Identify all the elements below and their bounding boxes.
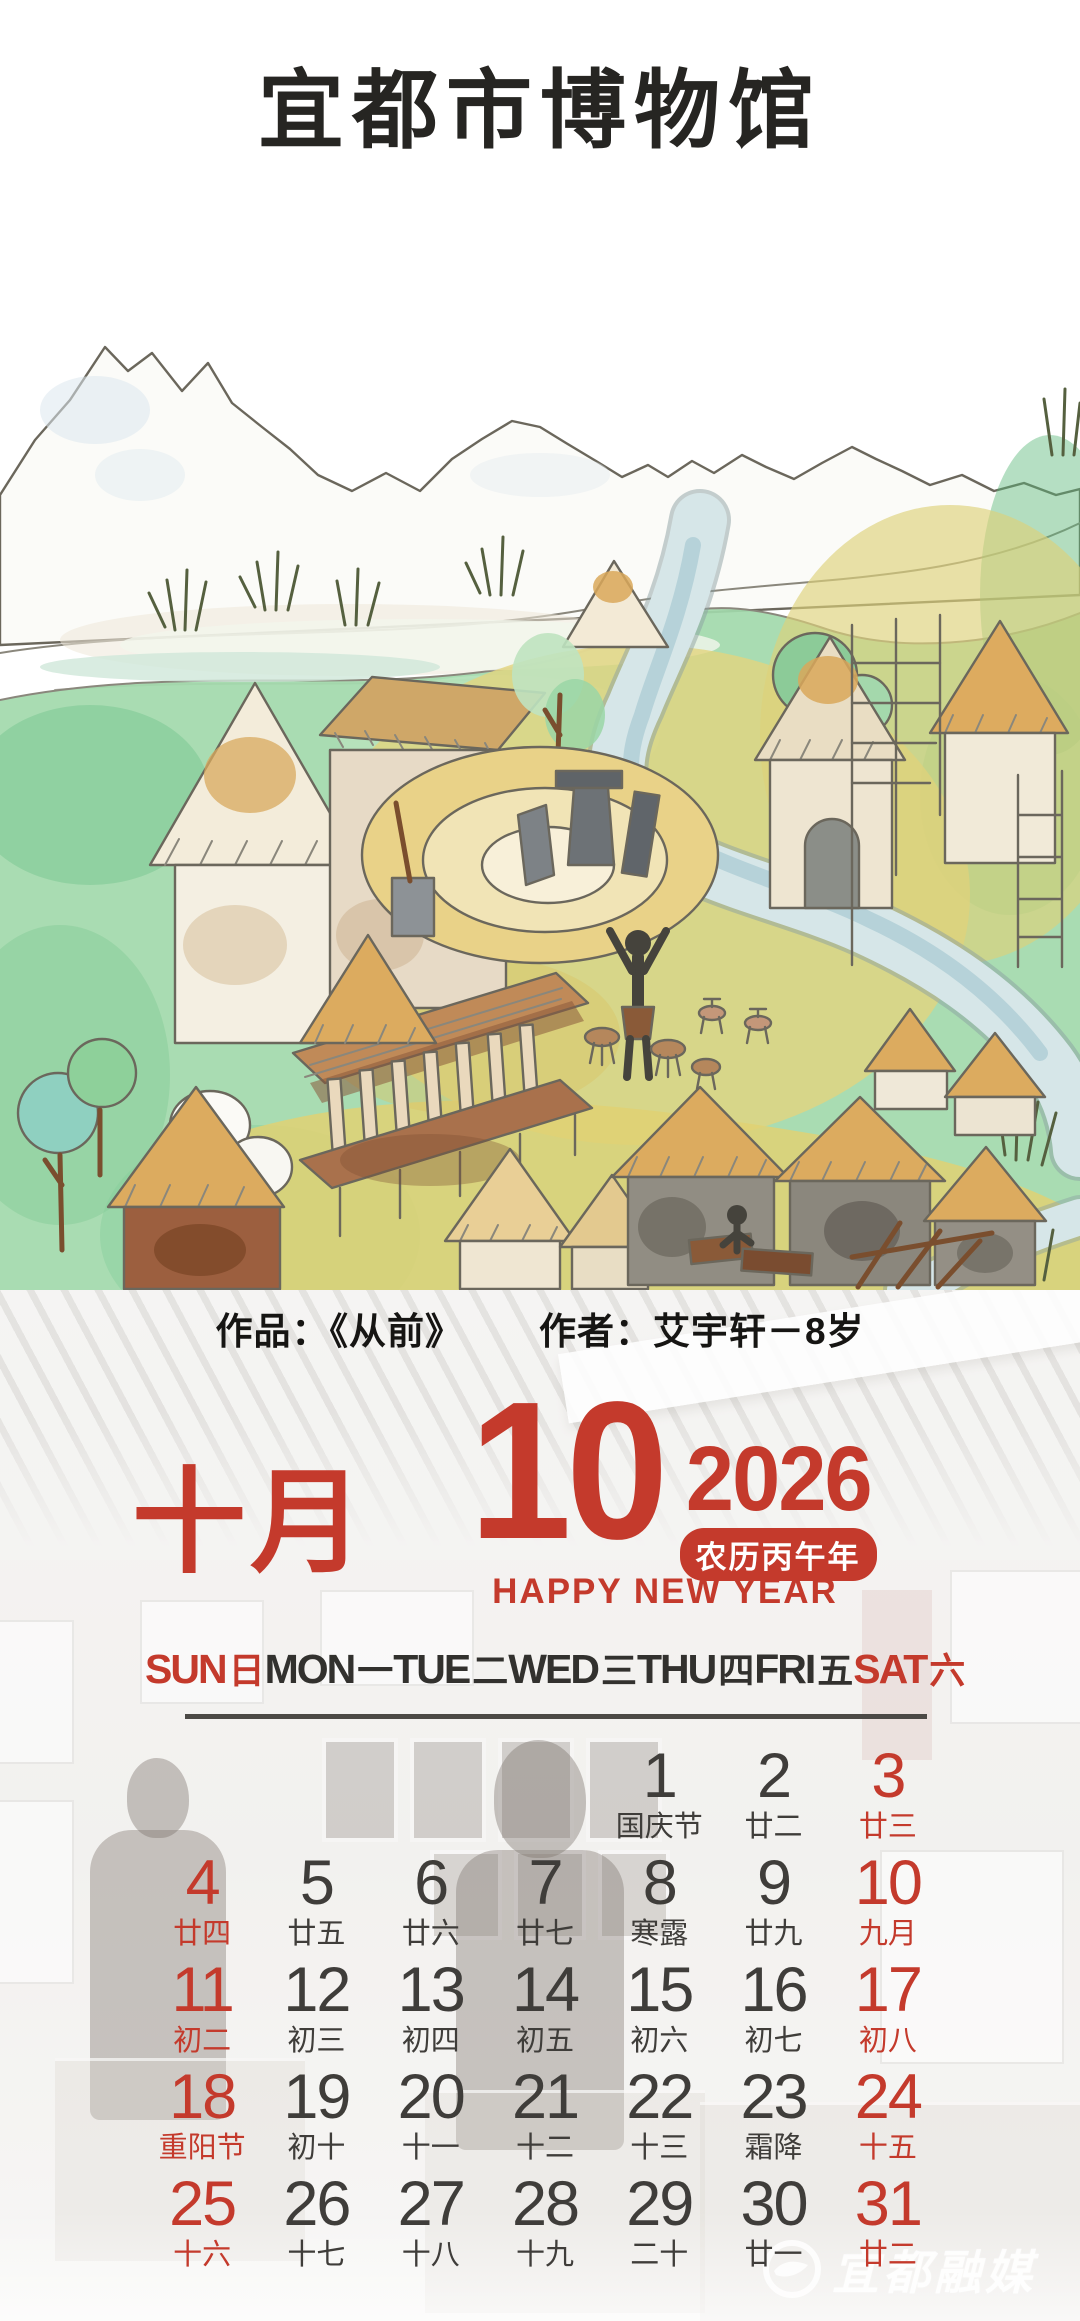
day-1: 1国庆节: [602, 1744, 716, 1851]
wall-frame: [950, 1570, 1080, 1724]
month-year-block: 10 2026 农历丙午年: [440, 1378, 900, 1581]
day-6: 6廿六: [374, 1851, 488, 1958]
day-25: 25十六: [145, 2172, 259, 2279]
day-27: 27十八: [374, 2172, 488, 2279]
artwork-painting: [0, 175, 1080, 1290]
day-empty: [374, 1744, 488, 1851]
day-8: 8寒露: [602, 1851, 716, 1958]
day-23: 23霜降: [716, 2065, 830, 2172]
weekday-wed: WED三: [508, 1642, 637, 1694]
wall-frame: [0, 1800, 74, 1984]
page-title: 宜都市博物馆: [0, 40, 1080, 165]
day-5: 5廿五: [259, 1851, 373, 1958]
day-17: 17初八: [831, 1958, 945, 2065]
day-31: 31廿二: [831, 2172, 945, 2279]
day-2: 2廿二: [716, 1744, 830, 1851]
year-number: 2026: [686, 1438, 871, 1520]
day-24: 24十五: [831, 2065, 945, 2172]
day-26: 26十七: [259, 2172, 373, 2279]
day-empty: [488, 1744, 602, 1851]
weekday-divider: [185, 1714, 927, 1719]
day-18: 18重阳节: [145, 2065, 259, 2172]
weekday-mon: MON一: [265, 1642, 394, 1694]
greeting-text: HAPPY NEW YEAR: [425, 1572, 905, 1612]
month-number: 10: [470, 1378, 664, 1564]
day-empty: [145, 1744, 259, 1851]
day-21: 21十二: [488, 2065, 602, 2172]
weekday-sat: SAT六: [853, 1642, 965, 1694]
day-13: 13初四: [374, 1958, 488, 2065]
day-3: 3廿三: [831, 1744, 945, 1851]
day-9: 9廿九: [716, 1851, 830, 1958]
weekday-row: SUN日MON一TUE二WED三THU四FRI五SAT六: [145, 1642, 945, 1694]
weekday-tue: TUE二: [393, 1642, 508, 1694]
day-30: 30廿一: [716, 2172, 830, 2279]
artwork-caption: 作品：《从前》 作者：艾宇轩－8岁: [0, 1301, 1080, 1355]
day-19: 19初十: [259, 2065, 373, 2172]
date-grid: 1国庆节2廿二3廿三4廿四5廿五6廿六7廿七8寒露9廿九10九月11初二12初三…: [145, 1744, 945, 2279]
day-empty: [259, 1744, 373, 1851]
day-15: 15初六: [602, 1958, 716, 2065]
artwork-author-label: 作者：艾宇轩－8岁: [539, 1301, 865, 1355]
calendar-poster: 宜都市博物馆: [0, 0, 1080, 2321]
weekday-sun: SUN日: [145, 1642, 265, 1694]
day-16: 16初七: [716, 1958, 830, 2065]
weekday-fri: FRI五: [754, 1642, 853, 1694]
day-7: 7廿七: [488, 1851, 602, 1958]
weekday-thu: THU四: [637, 1642, 754, 1694]
day-29: 29二十: [602, 2172, 716, 2279]
day-11: 11初二: [145, 1958, 259, 2065]
wall-frame: [0, 1620, 74, 1764]
day-4: 4廿四: [145, 1851, 259, 1958]
month-name-chinese: 十月: [132, 1430, 368, 1595]
artwork-title-label: 作品：《从前》: [215, 1301, 463, 1355]
day-22: 22十三: [602, 2065, 716, 2172]
day-14: 14初五: [488, 1958, 602, 2065]
day-10: 10九月: [831, 1851, 945, 1958]
day-20: 20十一: [374, 2065, 488, 2172]
day-28: 28十九: [488, 2172, 602, 2279]
day-12: 12初三: [259, 1958, 373, 2065]
